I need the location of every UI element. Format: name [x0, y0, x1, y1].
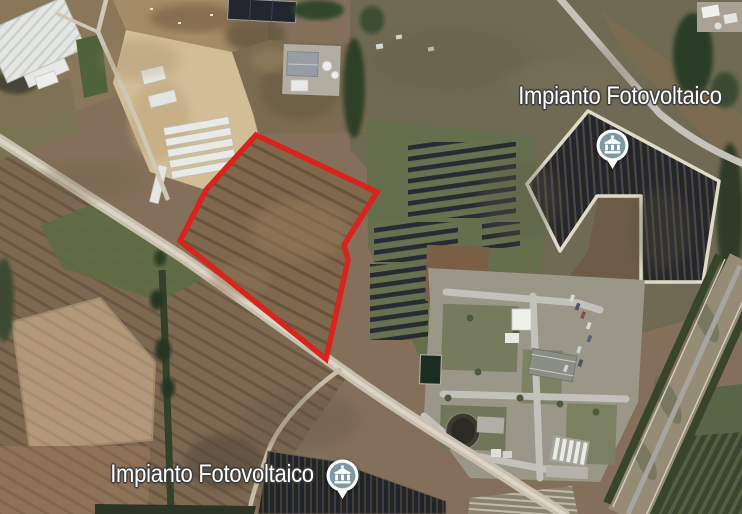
satellite-map-view: Impianto Fotovoltaico Impianto Fotovolta… [0, 0, 742, 514]
photovoltaic-plant-marker-south[interactable] [324, 457, 361, 500]
satellite-terrain [0, 0, 742, 514]
map-label-north-text: Impianto Fotovoltaico [518, 82, 722, 110]
map-label-south: Impianto Fotovoltaico [106, 460, 317, 489]
water-basin-square [419, 355, 441, 385]
map-label-south-text: Impianto Fotovoltaico [110, 460, 314, 488]
dark-roof-building [228, 0, 297, 23]
factory-north [282, 44, 341, 96]
factory-northeast [697, 2, 742, 32]
photovoltaic-plant-marker-north[interactable] [594, 127, 631, 170]
map-label-north: Impianto Fotovoltaico [514, 82, 725, 111]
